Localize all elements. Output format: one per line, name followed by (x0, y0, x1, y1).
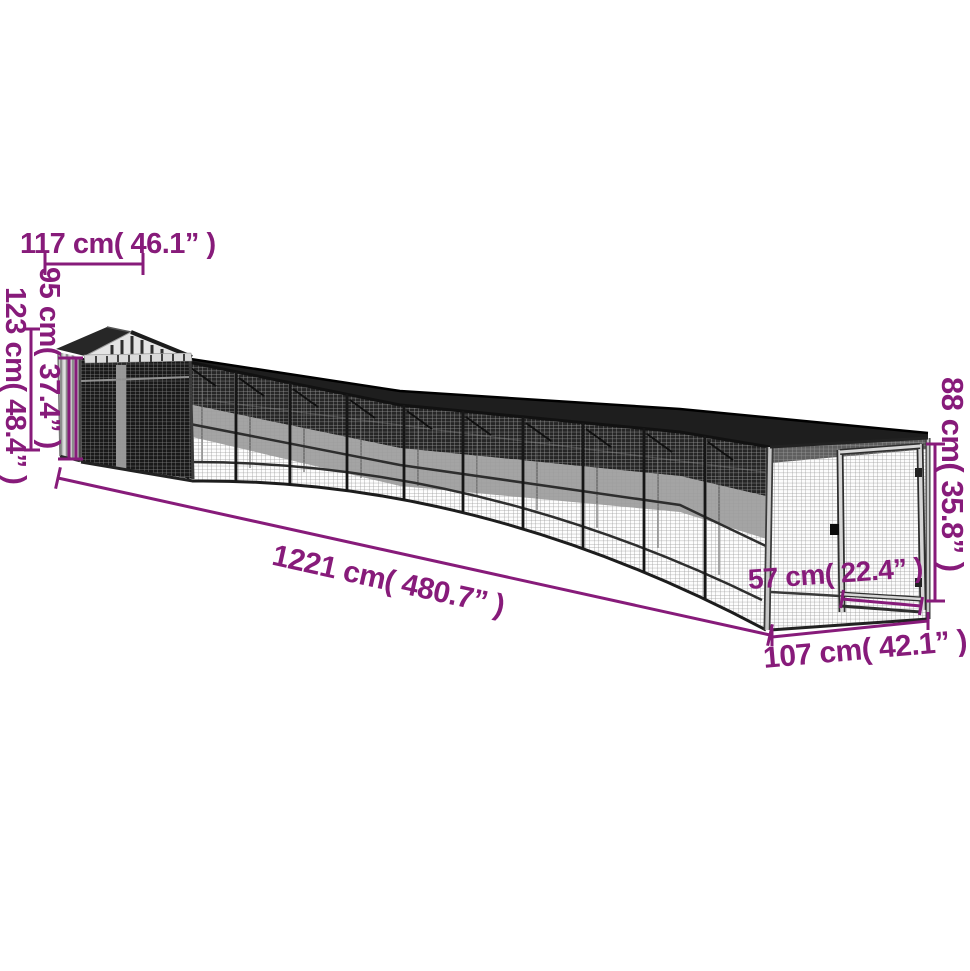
door-hinge-top (915, 468, 922, 477)
dimension-label-top-width: 117 cm( 46.1” ) (20, 230, 216, 259)
door-handle (830, 524, 839, 535)
coop-eave-trim (84, 353, 192, 363)
product-dimension-diagram: 117 cm( 46.1” ) 95 cm( 37.4” ) 123 cm( 4… (0, 0, 970, 971)
dimension-label-total-height: 123 cm( 48.4” ) (0, 287, 29, 484)
run-end-face (767, 438, 928, 630)
dimension-label-run-height: 88 cm( 35.8” ) (937, 377, 968, 572)
dimension-label-wall-height: 95 cm( 37.4” ) (34, 267, 63, 449)
structure-drawing (0, 0, 970, 971)
